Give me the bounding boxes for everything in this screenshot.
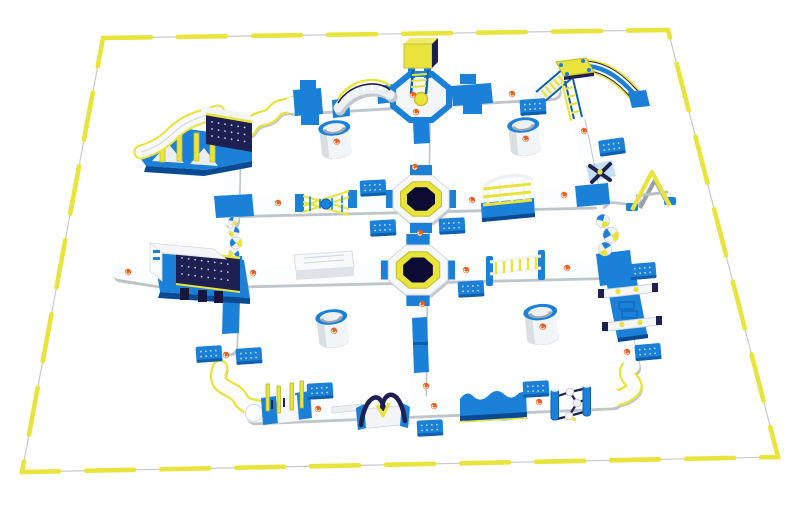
dock-pad [370,219,397,236]
dock-pad [458,280,485,297]
brand-logo-icon [536,399,542,405]
brand-logo-icon [463,267,469,273]
brand-logo-icon [413,109,419,115]
brand-logo-icon [417,230,423,236]
dock-pad [634,343,661,361]
water-park-render: Aerial 3D render of a giant inflatable f… [0,0,800,511]
wave-moguls [459,391,528,422]
stepping-stone [595,213,611,229]
brand-logo-icon [419,301,425,307]
dock-pad [439,217,466,234]
brand-logo-icon [431,403,437,409]
peak-slide-tower [536,58,650,121]
walkway-round-cap [246,405,263,422]
brand-logo-icon [581,128,587,134]
a-frame-climb [626,172,676,211]
dock-pad [360,179,387,196]
dock-pad [195,345,222,363]
brand-logo-icon [410,92,416,98]
brand-logo-icon [250,270,256,276]
water-park-scene: Aerial 3D render of a giant inflatable f… [0,0,800,511]
deck-platform [294,251,354,280]
tower-deck-dot [415,93,428,106]
twist-center-ball [321,199,331,209]
brand-logo-icon [469,197,475,203]
brand-logo-icon [624,349,630,355]
wave-slide-tower [136,106,252,176]
dock-pad [307,382,334,399]
splash-pad [628,90,650,108]
barrel-roller-3 [314,307,350,349]
dock-pad [523,380,550,397]
flip-bar-gates [261,381,312,425]
jump-trampoline-2 [381,234,455,306]
brand-logo-icon [509,91,515,97]
dock-pad [417,419,444,436]
brand-logo-icon [223,352,229,358]
brand-logo-icon [275,200,281,206]
dock-pad [519,98,546,116]
tower-cabin [404,44,432,68]
dock-pad [235,347,262,365]
dock-pad [598,137,626,156]
brand-logo-icon [564,265,570,271]
brand-logo-icon [125,269,131,275]
brand-logo-icon [412,164,418,170]
barrel-roller-1 [318,119,354,161]
barrel-roller-2 [507,116,543,158]
stepping-stones-right [595,213,622,258]
brand-logo-icon [315,406,321,412]
summit-tower [393,38,449,120]
dock-pad [629,262,656,280]
brand-logo-icon [423,383,429,389]
brand-logo-icon [561,192,567,198]
barrel-roller-4 [523,302,561,346]
hurdle-beams [598,276,662,342]
